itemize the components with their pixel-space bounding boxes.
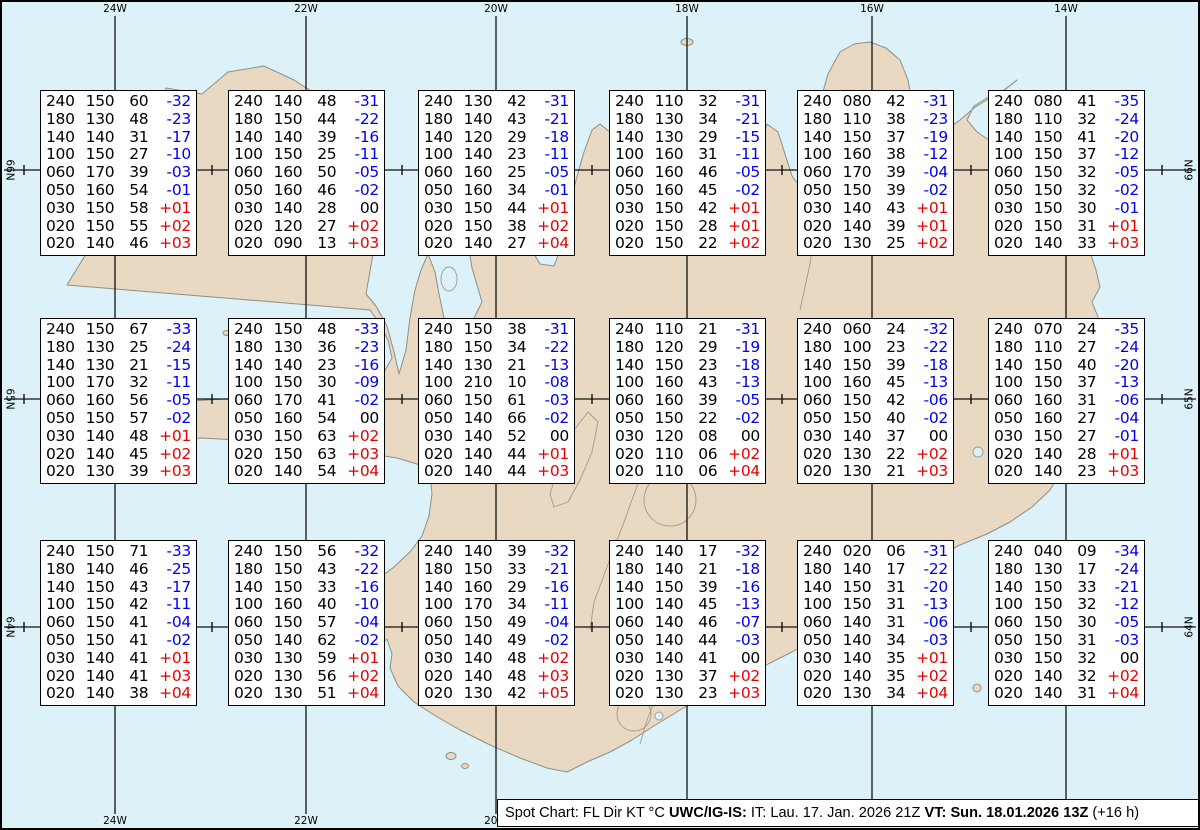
fl-value: 020 [803, 668, 834, 686]
kt-value: 31 [1073, 392, 1096, 410]
spot-row: 14015033-16 [234, 579, 379, 597]
fl-value: 180 [803, 561, 834, 579]
fl-value: 240 [994, 93, 1025, 111]
kt-value: 25 [313, 146, 336, 164]
kt-value: 34 [882, 632, 905, 650]
dir-value: 130 [86, 111, 117, 129]
spot-row: 24011021-31 [615, 321, 760, 339]
spot-row: 10015037-12 [994, 146, 1139, 164]
dir-value: 140 [843, 200, 874, 218]
spot-row: 03014041+01 [46, 650, 191, 668]
kt-value: 32 [1073, 650, 1096, 668]
temp-value: +01 [726, 218, 760, 236]
fl-value: 140 [615, 129, 646, 147]
temp-value: +02 [726, 235, 760, 253]
temp-value: -21 [726, 111, 760, 129]
temp-value: 00 [345, 410, 379, 428]
dir-value: 080 [1034, 93, 1065, 111]
temp-value: -15 [726, 129, 760, 147]
kt-value: 33 [1073, 235, 1096, 253]
fl-value: 180 [994, 561, 1025, 579]
temp-value: +03 [345, 235, 379, 253]
kt-value: 37 [1073, 374, 1096, 392]
fl-value: 020 [424, 685, 455, 703]
spot-row: 24015038-31 [424, 321, 569, 339]
temp-value: +03 [535, 463, 569, 481]
spot-row: 03013059+01 [234, 650, 379, 668]
temp-value: -35 [1105, 93, 1139, 111]
temp-value: -01 [1105, 200, 1139, 218]
spot-table: 24008041-3518011032-2414015041-201001503… [988, 90, 1145, 256]
fl-value: 060 [234, 164, 265, 182]
dir-value: 130 [464, 685, 495, 703]
spot-table: 24014017-3218014021-1814015039-161001404… [609, 540, 766, 706]
dir-value: 160 [655, 146, 686, 164]
latitude-label-text: 66N [4, 159, 16, 180]
kt-value: 40 [313, 596, 336, 614]
spot-row: 24015048-33 [234, 321, 379, 339]
dir-value: 140 [86, 685, 117, 703]
fl-value: 020 [46, 668, 77, 686]
dir-value: 150 [1034, 182, 1065, 200]
fl-value: 020 [994, 668, 1025, 686]
fl-value: 240 [46, 93, 77, 111]
dir-value: 160 [274, 164, 305, 182]
dir-value: 140 [843, 561, 874, 579]
fl-value: 100 [46, 596, 77, 614]
fl-value: 060 [46, 614, 77, 632]
temp-value: -11 [535, 596, 569, 614]
spot-row: 06017039-04 [803, 164, 948, 182]
kt-value: 56 [313, 668, 336, 686]
dir-value: 150 [1034, 614, 1065, 632]
kt-value: 27 [1073, 428, 1096, 446]
kt-value: 41 [313, 392, 336, 410]
kt-value: 44 [313, 111, 336, 129]
dir-value: 150 [1034, 357, 1065, 375]
kt-value: 30 [1073, 614, 1096, 632]
dir-value: 160 [274, 596, 305, 614]
dir-value: 140 [86, 650, 117, 668]
fl-value: 020 [615, 446, 646, 464]
fl-value: 140 [803, 579, 834, 597]
spot-row: 14015039-16 [615, 579, 760, 597]
spot-row: 0301405200 [424, 428, 569, 446]
temp-value: -32 [157, 93, 191, 111]
fl-value: 240 [803, 543, 834, 561]
kt-value: 46 [125, 235, 148, 253]
dir-value: 160 [1034, 410, 1065, 428]
spot-row: 10016038-12 [803, 146, 948, 164]
spot-row: 02013051+04 [234, 685, 379, 703]
dir-value: 150 [1034, 428, 1065, 446]
spot-row: 14013021-13 [424, 357, 569, 375]
kt-value: 39 [313, 129, 336, 147]
spot-row: 03015027-01 [994, 428, 1139, 446]
kt-value: 39 [882, 182, 905, 200]
kt-value: 22 [694, 410, 717, 428]
fl-value: 140 [46, 579, 77, 597]
dir-value: 140 [464, 235, 495, 253]
fl-value: 180 [615, 561, 646, 579]
fl-value: 020 [994, 685, 1025, 703]
fl-value: 240 [234, 321, 265, 339]
fl-value: 050 [803, 632, 834, 650]
temp-value: -18 [535, 129, 569, 147]
temp-value: -17 [157, 579, 191, 597]
temp-value: -25 [157, 561, 191, 579]
fl-value: 020 [994, 463, 1025, 481]
spot-row: 24014039-32 [424, 543, 569, 561]
kt-value: 49 [503, 632, 526, 650]
spot-row: 03015063+02 [234, 428, 379, 446]
spot-row: 02014044+01 [424, 446, 569, 464]
temp-value: +01 [726, 200, 760, 218]
temp-value: +03 [914, 463, 948, 481]
spot-row: 02014033+03 [994, 235, 1139, 253]
temp-value: -13 [726, 374, 760, 392]
spot-row: 02014035+02 [803, 668, 948, 686]
temp-value: -31 [914, 543, 948, 561]
dir-value: 110 [1034, 339, 1065, 357]
temp-value: +03 [1105, 463, 1139, 481]
spot-row: 10021010-08 [424, 374, 569, 392]
fl-value: 030 [234, 650, 265, 668]
spot-row: 24014017-32 [615, 543, 760, 561]
fl-value: 140 [46, 129, 77, 147]
dir-value: 130 [655, 685, 686, 703]
dir-value: 210 [464, 374, 495, 392]
fl-value: 180 [994, 111, 1025, 129]
dir-value: 150 [86, 146, 117, 164]
fl-value: 030 [234, 428, 265, 446]
fl-value: 050 [615, 182, 646, 200]
fl-value: 020 [994, 235, 1025, 253]
temp-value: +04 [345, 463, 379, 481]
spot-row: 14012029-18 [424, 129, 569, 147]
spot-row: 02013056+02 [234, 668, 379, 686]
spot-row: 02013034+04 [803, 685, 948, 703]
dir-value: 150 [1034, 632, 1065, 650]
fl-value: 050 [803, 410, 834, 428]
dir-value: 080 [843, 93, 874, 111]
fl-value: 240 [46, 321, 77, 339]
spot-row: 02014023+03 [994, 463, 1139, 481]
fl-value: 060 [803, 614, 834, 632]
kt-value: 38 [503, 218, 526, 236]
kt-value: 21 [503, 357, 526, 375]
dir-value: 130 [86, 339, 117, 357]
temp-value: -23 [914, 111, 948, 129]
spot-row: 24013042-31 [424, 93, 569, 111]
kt-value: 48 [503, 650, 526, 668]
fl-value: 180 [234, 339, 265, 357]
dir-value: 150 [86, 218, 117, 236]
fl-value: 030 [994, 200, 1025, 218]
kt-value: 27 [125, 146, 148, 164]
spot-row: 05015039-02 [803, 182, 948, 200]
fl-value: 020 [234, 463, 265, 481]
temp-value: +01 [157, 428, 191, 446]
vestmannaeyjar-island [462, 764, 469, 769]
temp-value: -22 [345, 561, 379, 579]
dir-value: 140 [843, 650, 874, 668]
spot-table: 24013042-3118014043-2114012029-181001402… [418, 90, 575, 256]
temp-value: +02 [914, 668, 948, 686]
dir-value: 140 [464, 668, 495, 686]
temp-value: -33 [157, 543, 191, 561]
fl-value: 240 [994, 543, 1025, 561]
temp-value: -23 [157, 111, 191, 129]
dir-value: 100 [843, 339, 874, 357]
temp-value: +01 [1105, 446, 1139, 464]
kt-value: 25 [125, 339, 148, 357]
temp-value: -32 [914, 321, 948, 339]
kt-value: 62 [313, 632, 336, 650]
kt-value: 32 [694, 93, 717, 111]
kt-value: 60 [125, 93, 148, 111]
spot-row: 14015039-18 [803, 357, 948, 375]
kt-value: 32 [1073, 668, 1096, 686]
kt-value: 50 [313, 164, 336, 182]
dir-value: 150 [464, 392, 495, 410]
fl-value: 100 [46, 374, 77, 392]
dir-value: 140 [1034, 446, 1065, 464]
dir-value: 120 [464, 129, 495, 147]
temp-value: -31 [726, 321, 760, 339]
fl-value: 020 [803, 463, 834, 481]
spot-row: 02013023+03 [615, 685, 760, 703]
temp-value: -02 [1105, 182, 1139, 200]
temp-value: -21 [535, 111, 569, 129]
spot-row: 10015037-13 [994, 374, 1139, 392]
kt-value: 44 [503, 446, 526, 464]
temp-value: -24 [1105, 111, 1139, 129]
temp-value: -23 [345, 339, 379, 357]
dir-value: 160 [86, 182, 117, 200]
fl-value: 030 [424, 200, 455, 218]
kt-value: 27 [313, 218, 336, 236]
temp-value: -11 [157, 596, 191, 614]
spot-row: 18014043-21 [424, 111, 569, 129]
spot-row: 24015056-32 [234, 543, 379, 561]
temp-value: -04 [345, 614, 379, 632]
fl-value: 020 [234, 235, 265, 253]
temp-value: +04 [157, 685, 191, 703]
fl-value: 100 [803, 374, 834, 392]
fl-value: 060 [994, 392, 1025, 410]
fl-value: 180 [424, 339, 455, 357]
kt-value: 51 [313, 685, 336, 703]
temp-value: +01 [157, 200, 191, 218]
temp-value: -19 [726, 339, 760, 357]
kt-value: 34 [503, 339, 526, 357]
spot-table: 24015071-3318014046-2514015043-171001504… [40, 540, 197, 706]
temp-value: -33 [157, 321, 191, 339]
temp-value: -16 [345, 129, 379, 147]
kt-value: 42 [503, 93, 526, 111]
temp-value: -02 [726, 410, 760, 428]
temp-value: +03 [157, 668, 191, 686]
kt-value: 38 [503, 321, 526, 339]
dir-value: 140 [843, 614, 874, 632]
temp-value: -05 [1105, 614, 1139, 632]
temp-value: -34 [1105, 543, 1139, 561]
temp-value: -10 [157, 146, 191, 164]
spot-row: 24015067-33 [46, 321, 191, 339]
fl-value: 180 [424, 111, 455, 129]
spot-table: 24015056-3218015043-2214015033-161001604… [228, 540, 385, 706]
dir-value: 110 [655, 93, 686, 111]
spot-row: 18014017-22 [803, 561, 948, 579]
kt-value: 41 [125, 632, 148, 650]
spot-row: 10015025-11 [234, 146, 379, 164]
spot-row: 03014043+01 [803, 200, 948, 218]
fl-value: 020 [803, 218, 834, 236]
kt-value: 46 [694, 614, 717, 632]
kt-value: 48 [313, 321, 336, 339]
temp-value: -11 [726, 146, 760, 164]
dir-value: 140 [1034, 668, 1065, 686]
spot-table: 24011032-3118013034-2114013029-151001603… [609, 90, 766, 256]
spot-row: 18013048-23 [46, 111, 191, 129]
temp-value: -22 [914, 561, 948, 579]
kt-value: 22 [882, 446, 905, 464]
temp-value: -22 [914, 339, 948, 357]
fl-value: 100 [615, 146, 646, 164]
fl-value: 140 [994, 129, 1025, 147]
temp-value: 00 [914, 428, 948, 446]
fl-value: 100 [424, 374, 455, 392]
spot-row: 10014045-13 [615, 596, 760, 614]
temp-value: -03 [535, 392, 569, 410]
spot-row: 10015027-10 [46, 146, 191, 164]
fl-value: 030 [234, 200, 265, 218]
dir-value: 140 [655, 632, 686, 650]
spot-row: 06015057-04 [234, 614, 379, 632]
kt-value: 06 [694, 446, 717, 464]
spot-row: 05015040-02 [803, 410, 948, 428]
spot-row: 14015043-17 [46, 579, 191, 597]
fl-value: 050 [234, 632, 265, 650]
dir-value: 140 [86, 428, 117, 446]
kt-value: 42 [882, 93, 905, 111]
dir-value: 140 [655, 596, 686, 614]
longitude-label-bottom: 24W [95, 815, 135, 827]
fl-value: 180 [615, 339, 646, 357]
dir-value: 140 [843, 632, 874, 650]
temp-value: +03 [157, 463, 191, 481]
kt-value: 56 [125, 392, 148, 410]
dir-value: 150 [1034, 218, 1065, 236]
hop-lagoon-lake [441, 267, 457, 291]
spot-row: 18014021-18 [615, 561, 760, 579]
dir-value: 130 [655, 129, 686, 147]
kt-value: 45 [694, 182, 717, 200]
kt-value: 39 [125, 463, 148, 481]
temp-value: -16 [726, 579, 760, 597]
spot-row: 18015044-22 [234, 111, 379, 129]
fl-value: 240 [424, 93, 455, 111]
spot-row: 03014048+02 [424, 650, 569, 668]
spot-row: 10015031-13 [803, 596, 948, 614]
temp-value: +02 [345, 668, 379, 686]
dir-value: 140 [464, 111, 495, 129]
temp-value: -22 [345, 111, 379, 129]
dir-value: 140 [86, 446, 117, 464]
spot-row: 02015022+02 [615, 235, 760, 253]
dir-value: 140 [464, 410, 495, 428]
temp-value: +02 [345, 218, 379, 236]
kt-value: 48 [125, 111, 148, 129]
temp-value: 00 [726, 428, 760, 446]
longitude-label-top: 24W [95, 3, 135, 15]
spot-row: 02014031+04 [994, 685, 1139, 703]
spot-row: 14015041-20 [994, 129, 1139, 147]
temp-value: +03 [345, 446, 379, 464]
latitude-label-text: 66N [1184, 159, 1196, 180]
spot-row: 24008042-31 [803, 93, 948, 111]
spot-table: 24014048-3118015044-2214014039-161001502… [228, 90, 385, 256]
dir-value: 140 [655, 650, 686, 668]
kt-value: 31 [1073, 218, 1096, 236]
temp-value: -12 [1105, 146, 1139, 164]
fl-value: 240 [803, 321, 834, 339]
spot-row: 18012029-19 [615, 339, 760, 357]
fl-value: 020 [615, 463, 646, 481]
spot-row: 18013036-23 [234, 339, 379, 357]
spot-row: 18011027-24 [994, 339, 1139, 357]
temp-value: -33 [345, 321, 379, 339]
fl-value: 240 [234, 93, 265, 111]
dir-value: 150 [1034, 200, 1065, 218]
temp-value: -18 [914, 357, 948, 375]
dir-value: 140 [464, 428, 495, 446]
spot-row: 05014049-02 [424, 632, 569, 650]
spot-row: 14013029-15 [615, 129, 760, 147]
kt-value: 06 [882, 543, 905, 561]
spot-row: 02011006+04 [615, 463, 760, 481]
dir-value: 040 [1034, 543, 1065, 561]
caption-bar: Spot Chart: FL Dir KT °C UWC/IG-IS: IT: … [497, 799, 1198, 827]
spot-row: 02009013+03 [234, 235, 379, 253]
spot-row: 14015031-20 [803, 579, 948, 597]
fl-value: 050 [615, 632, 646, 650]
fl-value: 140 [234, 579, 265, 597]
spot-row: 05016054-01 [46, 182, 191, 200]
fl-value: 020 [424, 446, 455, 464]
caption-text: UWC/IG-IS: [669, 805, 747, 821]
spot-row: 14016029-16 [424, 579, 569, 597]
kt-value: 17 [1073, 561, 1096, 579]
longitude-label-top: 22W [286, 3, 326, 15]
kt-value: 10 [503, 374, 526, 392]
dir-value: 150 [1034, 164, 1065, 182]
temp-value: -06 [914, 614, 948, 632]
spot-row: 02014046+03 [46, 235, 191, 253]
fl-value: 030 [803, 650, 834, 668]
fl-value: 030 [424, 650, 455, 668]
fl-value: 050 [234, 182, 265, 200]
papey-islet [973, 684, 981, 692]
spot-row: 02015063+03 [234, 446, 379, 464]
dir-value: 140 [464, 650, 495, 668]
dir-value: 090 [274, 235, 305, 253]
kt-value: 42 [503, 685, 526, 703]
fl-value: 100 [46, 146, 77, 164]
temp-value: +02 [157, 218, 191, 236]
fl-value: 020 [615, 668, 646, 686]
